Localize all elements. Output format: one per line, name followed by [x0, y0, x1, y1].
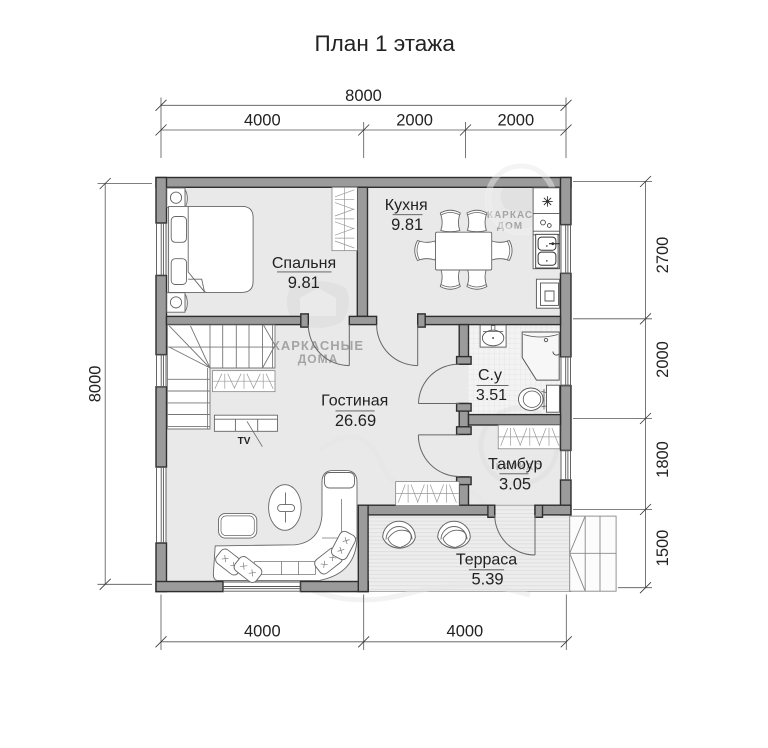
- svg-text:4000: 4000: [244, 622, 281, 640]
- svg-text:3.51: 3.51: [476, 387, 507, 404]
- svg-text:2700: 2700: [654, 237, 672, 274]
- svg-text:ДОМА: ДОМА: [298, 352, 339, 366]
- svg-text:Терраса: Терраса: [456, 552, 517, 569]
- svg-text:5.39: 5.39: [471, 570, 503, 588]
- svg-text:Кухня: Кухня: [385, 197, 428, 214]
- svg-text:План 1 этажа: План 1 этажа: [315, 31, 456, 56]
- svg-text:Тамбур: Тамбур: [488, 456, 542, 473]
- svg-text:2000: 2000: [396, 112, 433, 130]
- svg-text:С.у: С.у: [478, 367, 502, 384]
- svg-text:4000: 4000: [447, 622, 484, 640]
- svg-text:2000: 2000: [497, 112, 534, 130]
- svg-text:1500: 1500: [654, 530, 672, 567]
- svg-text:1800: 1800: [654, 441, 672, 478]
- svg-text:Гостиная: Гостиная: [321, 393, 388, 410]
- svg-text:2000: 2000: [654, 341, 672, 378]
- svg-text:3.05: 3.05: [499, 475, 531, 493]
- svg-text:8000: 8000: [345, 87, 382, 105]
- svg-text:TV: TV: [238, 436, 251, 447]
- svg-text:8000: 8000: [87, 366, 105, 403]
- svg-text:Спальня: Спальня: [272, 255, 336, 272]
- svg-text:26.69: 26.69: [335, 412, 376, 430]
- svg-text:9.81: 9.81: [288, 274, 320, 292]
- svg-text:9.81: 9.81: [391, 216, 423, 234]
- svg-text:4000: 4000: [244, 112, 281, 130]
